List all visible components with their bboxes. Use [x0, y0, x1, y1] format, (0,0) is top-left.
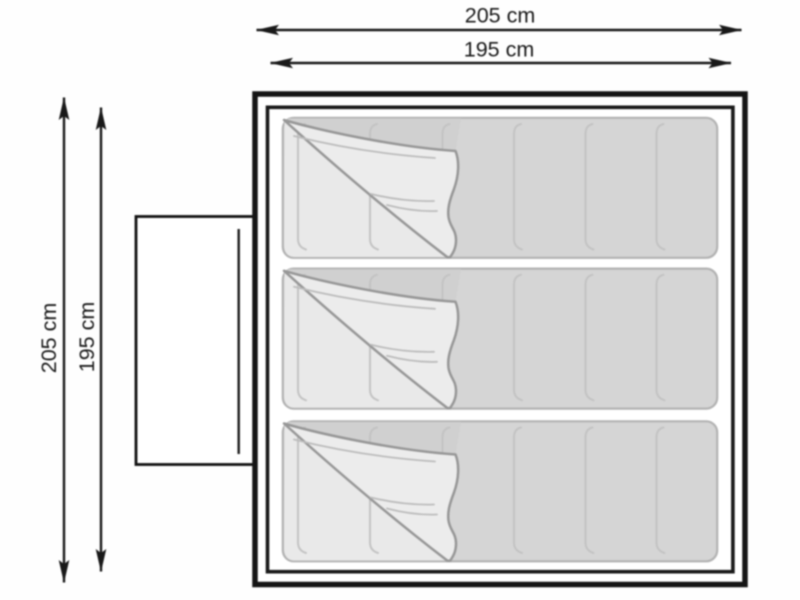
svg-text:205 cm: 205 cm — [37, 303, 61, 374]
svg-text:195 cm: 195 cm — [464, 38, 535, 62]
svg-text:205 cm: 205 cm — [465, 4, 536, 28]
svg-text:195 cm: 195 cm — [75, 302, 99, 373]
